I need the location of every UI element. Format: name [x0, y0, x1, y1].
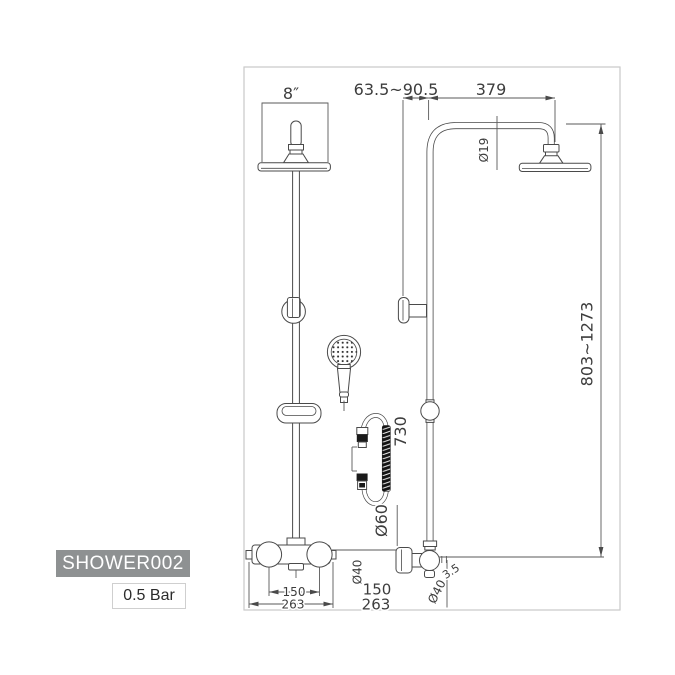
- pressure-rating-label: 0.5 Bar: [123, 587, 175, 605]
- shower-technical-drawing-page: 8″ 63.5~90.5 379 Ø19 803~1273 730 Ø60 15…: [0, 0, 675, 675]
- riser-arm-fill: [430, 126, 551, 546]
- head-cone: [284, 154, 309, 163]
- valve-top-block: [287, 538, 305, 546]
- dim-height-range: 803~1273: [578, 302, 597, 387]
- mixer-handle-left: [256, 542, 281, 567]
- mixer-handle-right: [307, 542, 332, 567]
- hand-shower-handle-end: [340, 392, 349, 397]
- wall-bracket-arm: [409, 305, 427, 318]
- dim-valve-width: 263: [282, 598, 305, 612]
- front-view: [246, 103, 361, 578]
- dim-riser-diameter: Ø19: [477, 138, 491, 163]
- wall-bracket-flange: [398, 298, 409, 324]
- valve-tab-left: [246, 551, 252, 560]
- side-view: [396, 126, 591, 578]
- hose-bottom-connector-detail: [359, 483, 365, 488]
- slider-clamp: [287, 298, 300, 318]
- riser-pipe-front: [293, 155, 300, 546]
- head-inlet-knob: [291, 121, 301, 147]
- ball-joint: [421, 402, 439, 420]
- dim-flange-diameter: Ø60: [372, 504, 391, 537]
- wall-flange: [396, 548, 412, 574]
- hose-top-connector-band: [357, 435, 368, 443]
- bottom-collar-2: [425, 547, 435, 551]
- hand-shower-handle: [338, 369, 351, 394]
- dim-head-width: 8″: [283, 84, 299, 103]
- dim-hose-length: 730: [391, 416, 410, 447]
- inlet-tail: [425, 571, 435, 578]
- dim-offset-263: 263: [362, 596, 391, 614]
- inlet-ball: [420, 551, 440, 571]
- dim-flange-depth: 3.5: [440, 561, 462, 581]
- dim-wall-range: 63.5~90.5: [354, 80, 439, 99]
- hose-top-connector-body: [358, 442, 366, 448]
- hose-bottom-connector-band: [357, 474, 368, 482]
- head-collar-2: [290, 150, 302, 154]
- hose-detail: [344, 401, 390, 504]
- pressure-rating-badge: 0.5 Bar: [112, 583, 186, 609]
- head-collar: [289, 145, 304, 151]
- rain-head-side: [519, 163, 591, 171]
- hose-top-connector-cap: [357, 428, 368, 435]
- model-code-label: SHOWER002: [62, 553, 184, 575]
- dim-arm-length: 379: [476, 80, 507, 99]
- model-code-badge: SHOWER002: [56, 550, 190, 577]
- bottom-collar: [423, 541, 436, 547]
- side-head-nut: [544, 145, 560, 153]
- hose-coil-section: [382, 426, 390, 492]
- rain-head-front: [258, 163, 330, 171]
- valve-outlet-cap: [289, 564, 304, 571]
- dim-inlet-diameter: Ø40: [425, 577, 449, 605]
- hand-shower-face: [331, 339, 357, 365]
- side-head-cone: [540, 156, 564, 164]
- riser-arm-outline: [430, 126, 551, 546]
